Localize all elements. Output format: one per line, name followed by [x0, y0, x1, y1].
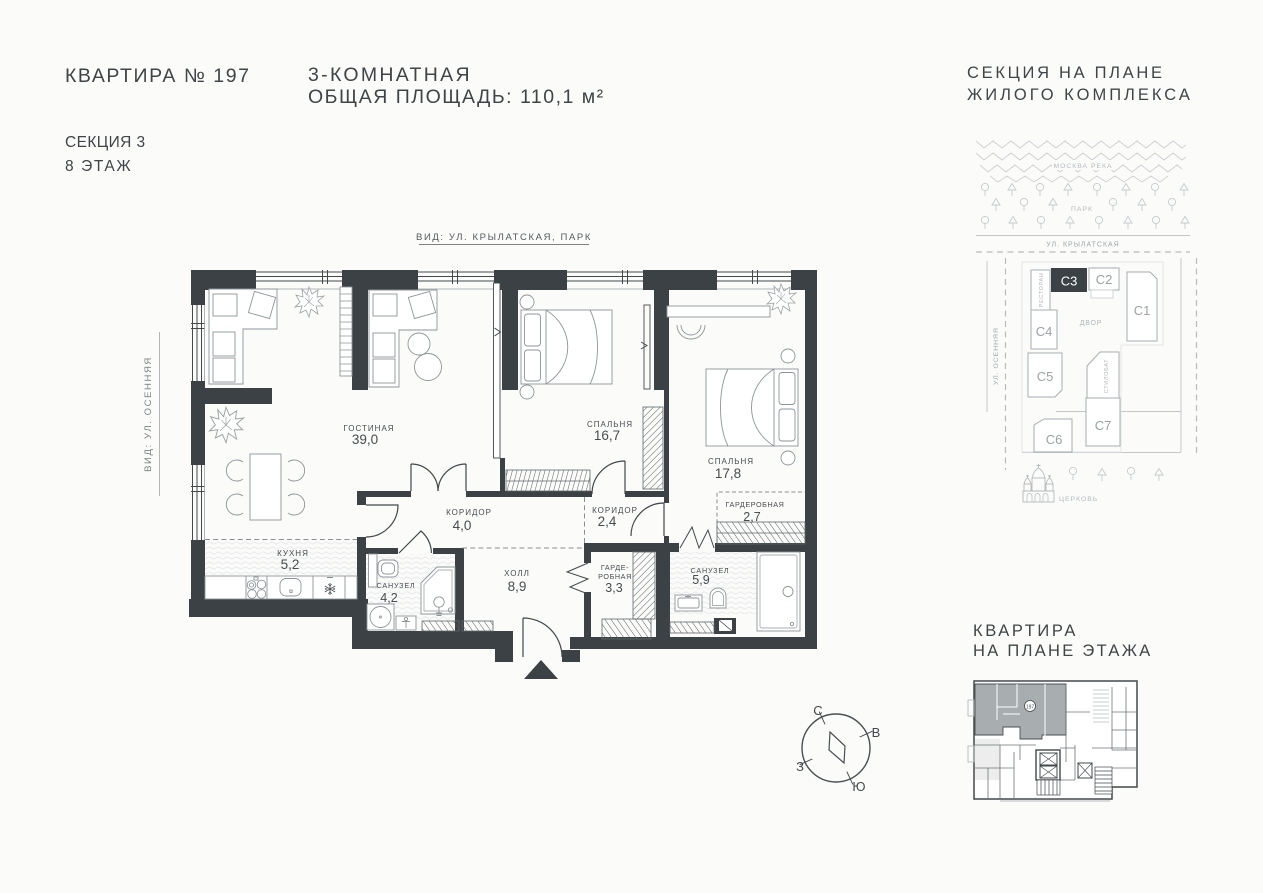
svg-text:4,0: 4,0 — [453, 518, 472, 533]
svg-text:В: В — [872, 725, 881, 740]
svg-text:КВАРТИРА: КВАРТИРА — [973, 622, 1078, 640]
svg-text:С: С — [813, 703, 822, 718]
svg-text:4,2: 4,2 — [380, 591, 397, 605]
svg-text:39,0: 39,0 — [352, 432, 378, 447]
svg-text:ВИД: УЛ. ОСЕННЯЯ: ВИД: УЛ. ОСЕННЯЯ — [143, 356, 154, 472]
svg-text:РЕСТОРАН: РЕСТОРАН — [1039, 273, 1045, 308]
svg-text:САНУЗЕЛ: САНУЗЕЛ — [377, 581, 416, 590]
svg-text:С3: С3 — [1061, 274, 1078, 289]
svg-text:3-КОМНАТНАЯ: 3-КОМНАТНАЯ — [308, 64, 472, 86]
svg-text:С7: С7 — [1095, 418, 1112, 433]
svg-text:3,3: 3,3 — [605, 581, 622, 595]
svg-text:5,2: 5,2 — [281, 557, 300, 572]
svg-text:РОБНАЯ: РОБНАЯ — [598, 572, 632, 581]
svg-text:СТИЛОБАТ: СТИЛОБАТ — [1104, 359, 1110, 393]
svg-text:С1: С1 — [1134, 303, 1151, 318]
svg-text:17,8: 17,8 — [715, 466, 741, 481]
svg-text:УЛ. ОСЕННЯЯ: УЛ. ОСЕННЯЯ — [993, 327, 1000, 385]
svg-text:5,9: 5,9 — [692, 573, 709, 587]
svg-text:СЕКЦИЯ НА ПЛАНЕ: СЕКЦИЯ НА ПЛАНЕ — [967, 64, 1165, 82]
svg-text:С6: С6 — [1046, 432, 1063, 447]
svg-text:МОСКВА РЕКА: МОСКВА РЕКА — [1053, 163, 1112, 170]
svg-text:КОРИДОР: КОРИДОР — [446, 508, 492, 517]
svg-text:16,7: 16,7 — [594, 428, 620, 443]
svg-text:НА ПЛАНЕ ЭТАЖА: НА ПЛАНЕ ЭТАЖА — [973, 642, 1153, 660]
svg-text:2,7: 2,7 — [743, 510, 760, 524]
svg-text:197: 197 — [1026, 705, 1035, 711]
svg-text:ЖИЛОГО КОМПЛЕКСА: ЖИЛОГО КОМПЛЕКСА — [967, 86, 1193, 104]
svg-text:С2: С2 — [1096, 272, 1113, 287]
svg-text:8 ЭТАЖ: 8 ЭТАЖ — [65, 158, 132, 175]
svg-text:ЦЕРКОВЬ: ЦЕРКОВЬ — [1059, 496, 1098, 503]
svg-text:ХОЛЛ: ХОЛЛ — [504, 569, 530, 578]
svg-text:ВИД: УЛ. КРЫЛАТСКАЯ, ПАРК: ВИД: УЛ. КРЫЛАТСКАЯ, ПАРК — [416, 232, 592, 243]
svg-text:С4: С4 — [1036, 324, 1053, 339]
svg-text:Ю: Ю — [852, 779, 865, 794]
svg-text:З: З — [796, 759, 804, 774]
svg-text:8,9: 8,9 — [508, 579, 527, 594]
svg-text:СПАЛЬНЯ: СПАЛЬНЯ — [708, 457, 754, 466]
svg-text:СЕКЦИЯ 3: СЕКЦИЯ 3 — [65, 134, 146, 151]
svg-text:ОБЩАЯ ПЛОЩАДЬ: 110,1 м²: ОБЩАЯ ПЛОЩАДЬ: 110,1 м² — [308, 86, 605, 108]
svg-text:ГАРДЕ-: ГАРДЕ- — [601, 563, 629, 572]
svg-text:ГАРДЕРОБНАЯ: ГАРДЕРОБНАЯ — [726, 500, 785, 509]
svg-text:2,4: 2,4 — [598, 514, 617, 529]
svg-text:УЛ. КРЫЛАТСКАЯ: УЛ. КРЫЛАТСКАЯ — [1046, 242, 1120, 249]
svg-text:КВАРТИРА № 197: КВАРТИРА № 197 — [65, 65, 250, 87]
svg-text:ПАРК: ПАРК — [1071, 206, 1093, 213]
svg-text:С5: С5 — [1037, 369, 1054, 384]
svg-text:ДВОР: ДВОР — [1080, 320, 1103, 327]
